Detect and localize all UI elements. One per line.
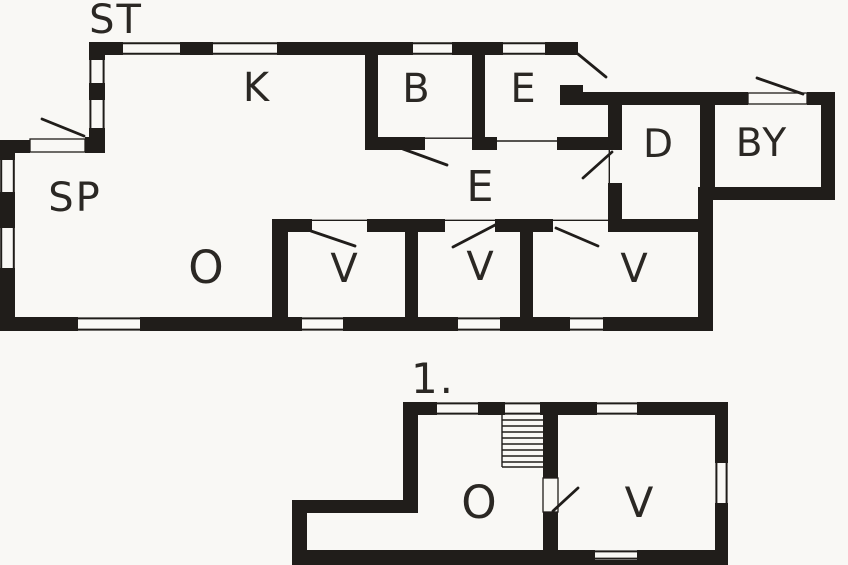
room-label-sp: SP: [48, 175, 102, 221]
window-sp-bottom: [78, 317, 140, 331]
room-label-e-entrance: E: [510, 66, 537, 112]
wall-d-left-upper: [608, 105, 622, 150]
window-v-bottom: [595, 550, 637, 560]
window-stair-top: [505, 402, 540, 415]
v2-room-door: [445, 220, 497, 247]
window-entrance-top: [503, 42, 545, 55]
room-label-v: V: [625, 478, 656, 527]
wall-by-bottom: [698, 187, 835, 200]
sp-exterior-door: [30, 119, 85, 152]
wall-top-right-b: [807, 92, 835, 105]
wall-right-lower: [698, 193, 713, 331]
wall-left-upper: [403, 402, 418, 513]
by-exterior-door: [748, 78, 807, 104]
v1-room-door: [311, 220, 367, 246]
door-swing-line: [403, 149, 447, 165]
house-floor-plan: ST K B E SP E D BY O V V V: [0, 0, 848, 565]
o-v-door: [543, 478, 578, 512]
wall-o-v-divider-upper: [543, 415, 558, 478]
wall-d-left-lower: [608, 183, 622, 232]
window-v-right: [715, 463, 728, 503]
room-label-o: O: [188, 241, 225, 294]
door-swing-line: [583, 152, 612, 178]
d-room-door: [583, 150, 612, 183]
window-v-top: [597, 402, 637, 415]
window-k-left-2: [89, 100, 105, 128]
first-floor-labels: 1. O V: [411, 354, 655, 529]
room-label-v1: V: [330, 246, 359, 292]
wall-extension-top: [292, 500, 418, 513]
wall-k-left: [89, 42, 105, 153]
wall-entrance-corner-block: [560, 85, 583, 105]
staircase: [502, 415, 543, 467]
window-v1-bottom: [302, 317, 343, 331]
wall-bottom: [292, 550, 728, 565]
window-opening: [0, 228, 15, 268]
room-label-b: B: [402, 66, 431, 112]
window-v3-bottom: [570, 317, 603, 331]
wall-sp-corner-post: [85, 137, 105, 153]
door-swing-line: [556, 228, 598, 246]
wall-below-b-right: [472, 137, 497, 150]
window-sp-left-1: [0, 160, 15, 192]
wall-k-b-divider: [365, 55, 378, 148]
window-v2-bottom: [458, 317, 500, 331]
wall-o-v-divider-lower: [543, 512, 558, 550]
wall-b-e-divider: [472, 55, 485, 148]
floor-label-ground: ST: [89, 0, 143, 43]
floorplan-image: ST K B E SP E D BY O V V V: [0, 0, 848, 565]
room-label-o: O: [461, 476, 498, 529]
floor-label-first: 1.: [411, 354, 455, 403]
room-label-v3: V: [620, 246, 649, 292]
room-label-d: D: [643, 122, 675, 167]
room-label-e-hall: E: [466, 162, 495, 212]
wall-d-bottom: [622, 219, 698, 232]
room-label-v2: V: [466, 244, 495, 290]
window-k-top-1: [123, 42, 180, 55]
door-swing-line: [757, 78, 803, 94]
room-label-k: K: [243, 65, 271, 111]
door-leaf: [748, 93, 807, 104]
door-leaf: [30, 139, 85, 152]
wall-hall-top-right: [557, 137, 610, 150]
window-k-top-2: [213, 42, 277, 55]
window-opening: [0, 160, 15, 192]
wall-v1-left: [272, 219, 288, 331]
v3-room-door: [553, 220, 608, 246]
window-o-top: [437, 402, 478, 415]
entrance-exterior-door: [578, 54, 606, 77]
door-swing-line: [42, 119, 84, 136]
door-swing-line: [311, 231, 355, 246]
room-label-by: BY: [736, 121, 788, 166]
wall-v1-v2-divider: [405, 219, 418, 331]
door-swing-line: [578, 54, 606, 77]
window-k-left-1: [89, 60, 105, 83]
window-sp-left-2: [0, 228, 15, 268]
ground-floor-plan: ST K B E SP E D BY O V V V: [0, 0, 835, 331]
first-floor-plan: 1. O V: [292, 354, 728, 565]
wall-below-b-left: [365, 137, 425, 150]
wall-d-by-divider: [700, 105, 715, 187]
wall-by-right: [821, 92, 835, 200]
wall-top-right-a: [578, 92, 748, 105]
window-b-top: [413, 42, 452, 55]
wall-v2-v3-divider: [520, 219, 533, 331]
